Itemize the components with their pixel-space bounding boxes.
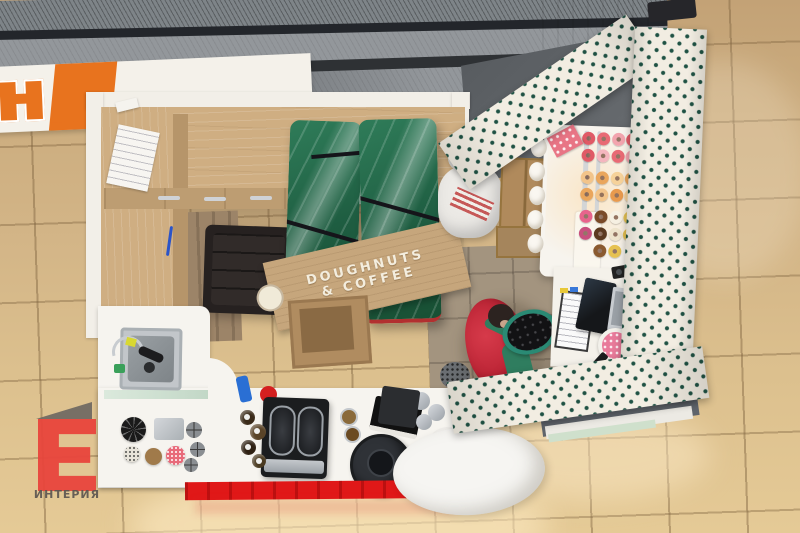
donut [581, 171, 594, 184]
open-cardboard-box [288, 295, 373, 368]
scrubber [114, 364, 125, 373]
drawer-handle [158, 196, 180, 200]
topping-jar [124, 446, 140, 462]
pump-bottle [344, 426, 361, 443]
syrup-bottle [252, 454, 266, 468]
glass-shelf-edge [104, 390, 208, 399]
espresso-group-head [296, 406, 324, 457]
donut [609, 228, 622, 241]
syrup-pump [244, 414, 250, 420]
whisk-top [184, 458, 198, 472]
espresso-group-head [268, 405, 296, 456]
donut [608, 245, 621, 258]
donut [582, 132, 595, 145]
watermark-name: ИНТЕРИЯ [26, 488, 108, 501]
espresso-machine [261, 397, 330, 479]
sticky-tag [560, 288, 568, 293]
donut [594, 227, 607, 240]
topping-jar [145, 448, 162, 465]
metal-tray [154, 418, 184, 440]
banner-logo-bar [10, 93, 28, 104]
syrup-bottle [240, 410, 255, 425]
donut [596, 171, 609, 184]
syrup-pump [256, 458, 262, 464]
donut [579, 227, 592, 240]
donut [593, 244, 606, 257]
donut [609, 211, 622, 224]
donut [612, 133, 625, 146]
photo-stage: DOUGHNUTS & COFFEE [0, 0, 800, 533]
donut [610, 189, 623, 202]
syrup-bottle [241, 440, 256, 455]
whisk-top [190, 442, 205, 457]
topping-jar [166, 446, 185, 465]
donut [597, 132, 610, 145]
donut [611, 172, 624, 185]
syrup-pump [245, 444, 251, 450]
dark-panel [378, 386, 421, 429]
donut [581, 149, 594, 162]
grinder-hopper [367, 449, 395, 477]
donut [579, 210, 592, 223]
sticky-tag [570, 287, 578, 292]
drawer-handle [204, 197, 226, 201]
wooden-counter-face [173, 114, 188, 335]
syrup-bottle [250, 424, 266, 440]
whisk-top [186, 422, 202, 438]
syrup-pump [254, 428, 260, 434]
watermark-logo-letter [38, 419, 96, 491]
drawer-handle [250, 196, 272, 200]
pump-bottle [340, 408, 358, 426]
donut [595, 188, 608, 201]
box-interior [299, 305, 354, 353]
camera-lens [616, 269, 623, 276]
donut [580, 188, 593, 201]
donut [594, 210, 607, 223]
donut [611, 150, 624, 163]
milk-pitcher [416, 414, 432, 430]
topping-jar [121, 417, 146, 442]
drip-tray [264, 459, 324, 474]
donut [596, 149, 609, 162]
